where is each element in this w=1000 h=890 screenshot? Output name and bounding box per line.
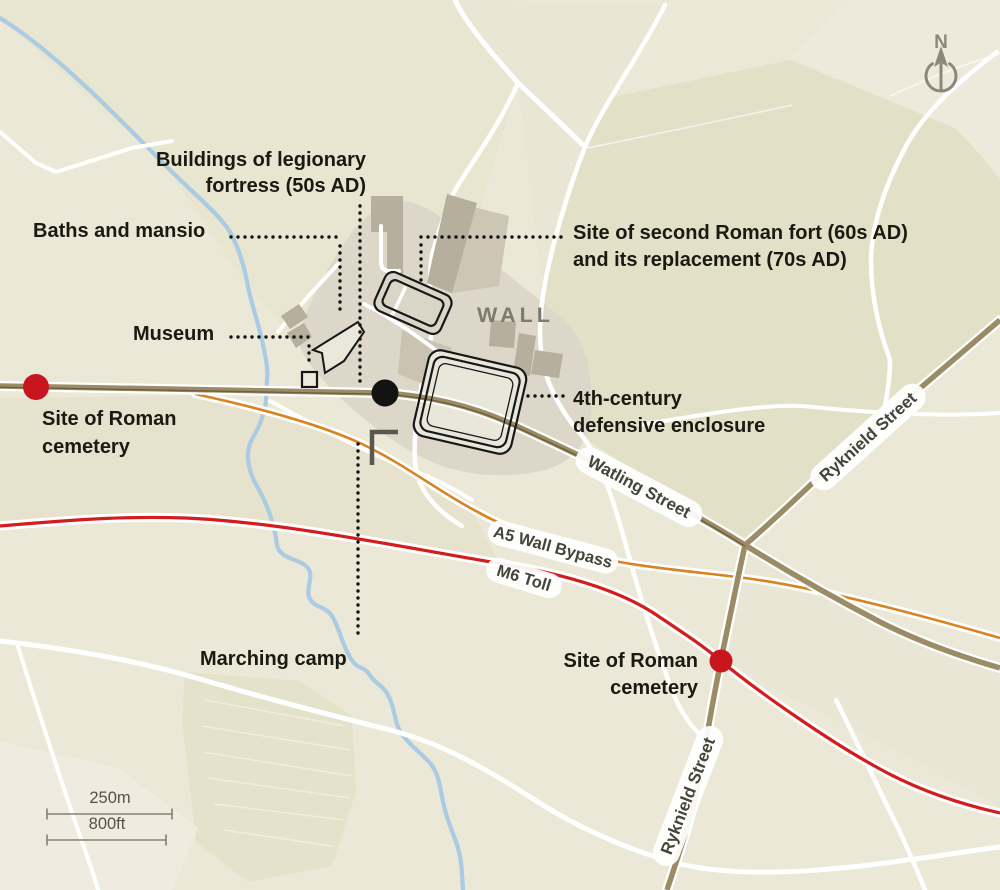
scale-metric-label: 250m [89, 789, 130, 807]
town-marker-dot [372, 380, 399, 407]
scale-imperial-label: 800ft [89, 815, 126, 833]
museum-label: Museum [133, 323, 214, 345]
cemetery-dot-south [710, 650, 733, 673]
place-name-label: WALL [477, 303, 554, 327]
roman-wall-map: Watling Street Ryknield Street Ryknield … [0, 0, 1000, 890]
map-canvas: Watling Street Ryknield Street Ryknield … [0, 0, 1000, 890]
second-fort-label-line2: and its replacement (70s AD) [573, 249, 847, 271]
enclosure-label-line2: defensive enclosure [573, 415, 765, 437]
museum-marker [302, 372, 317, 387]
legionary-fortress-label-line1: Buildings of legionary [156, 149, 367, 171]
legionary-fortress-label-line2: fortress (50s AD) [206, 175, 366, 197]
enclosure-label-line1: 4th-century [573, 388, 683, 410]
cemetery-west-label-line2: cemetery [42, 436, 131, 458]
second-fort-label-line1: Site of second Roman fort (60s AD) [573, 222, 908, 244]
building [531, 350, 563, 378]
cemetery-south-label-line1: Site of Roman [564, 650, 698, 672]
cemetery-south-label-line2: cemetery [610, 677, 699, 699]
cemetery-dot-west [23, 374, 49, 400]
cemetery-west-label-line1: Site of Roman [42, 408, 176, 430]
marching-camp-label: Marching camp [200, 648, 347, 670]
marching-camp-field [182, 672, 356, 882]
baths-mansio-label: Baths and mansio [33, 220, 205, 242]
